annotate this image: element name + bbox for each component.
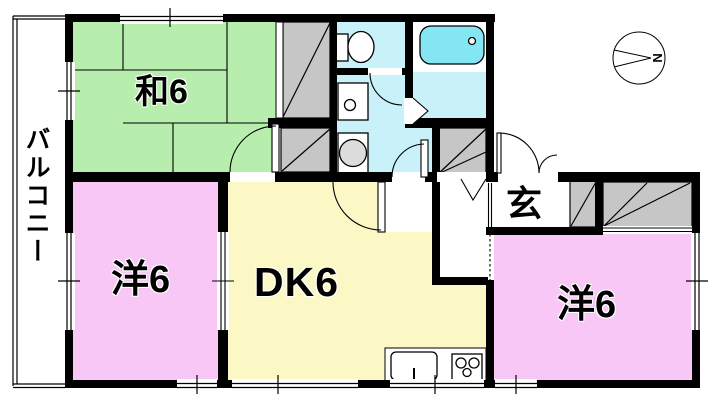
entrance-door: [497, 133, 558, 182]
bedroom-closet-sliding-door: [603, 226, 692, 234]
fusuma-sliding-door: [276, 22, 283, 118]
room-label-balcony: バルコニー: [23, 126, 48, 346]
room-label-western-left: 洋6: [111, 261, 170, 299]
bathtub-icon: [420, 26, 484, 64]
toilet-icon: [336, 32, 374, 63]
compass: N: [613, 32, 665, 84]
washing-machine-icon: [338, 133, 368, 174]
room-label-entrance: 玄: [506, 186, 542, 222]
washbasin-icon: [338, 83, 368, 120]
room-label-japanese: 和6: [135, 75, 188, 109]
floor-plan: N 和6 DK6 洋6 洋6 玄 バルコニー: [0, 0, 726, 409]
compass-north-label: N: [650, 53, 665, 62]
room-label-western-right: 洋6: [557, 286, 616, 324]
genkan-step-line: [489, 183, 492, 227]
floor-plan-drawing: N: [0, 0, 726, 409]
hallway-step-floor: [440, 232, 486, 277]
room-label-dk: DK6: [254, 262, 339, 303]
stove-icon: [452, 354, 482, 380]
